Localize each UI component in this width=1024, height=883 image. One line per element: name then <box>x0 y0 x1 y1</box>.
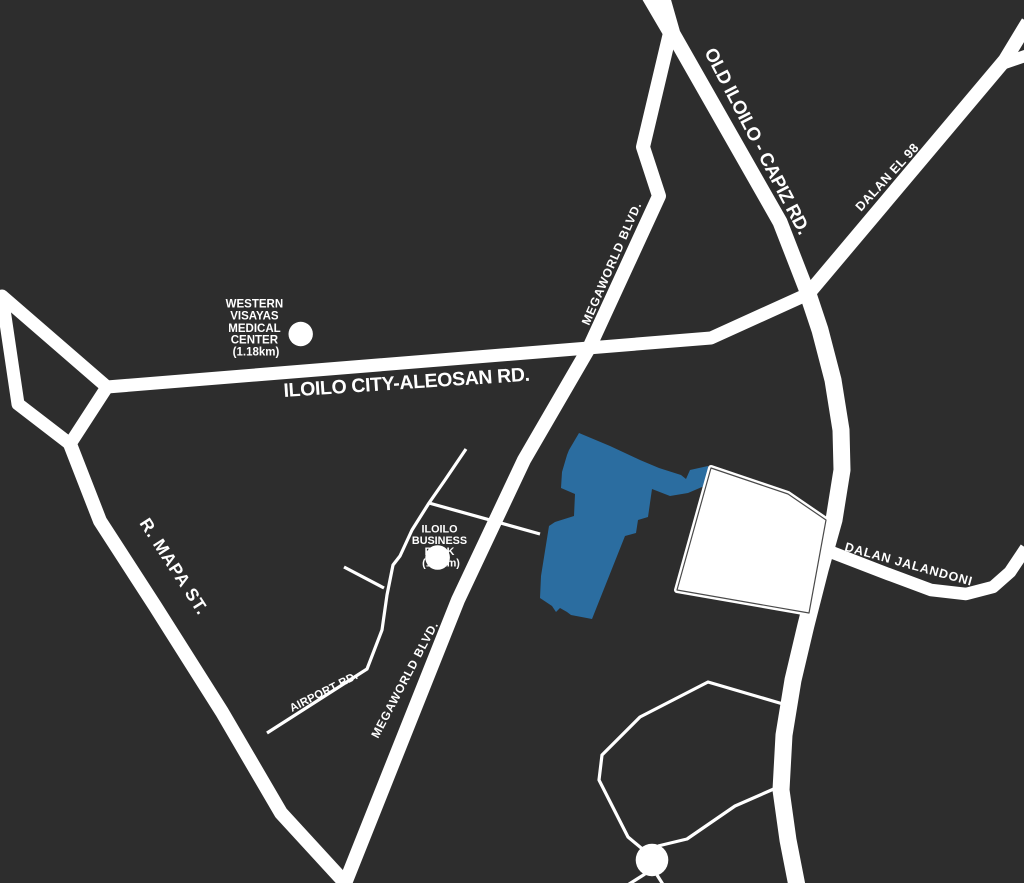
svg-text:WESTERN VISAYAS MEDICA: WESTERN VISAYAS MEDICAL CENTER (1.18km) <box>226 298 287 358</box>
